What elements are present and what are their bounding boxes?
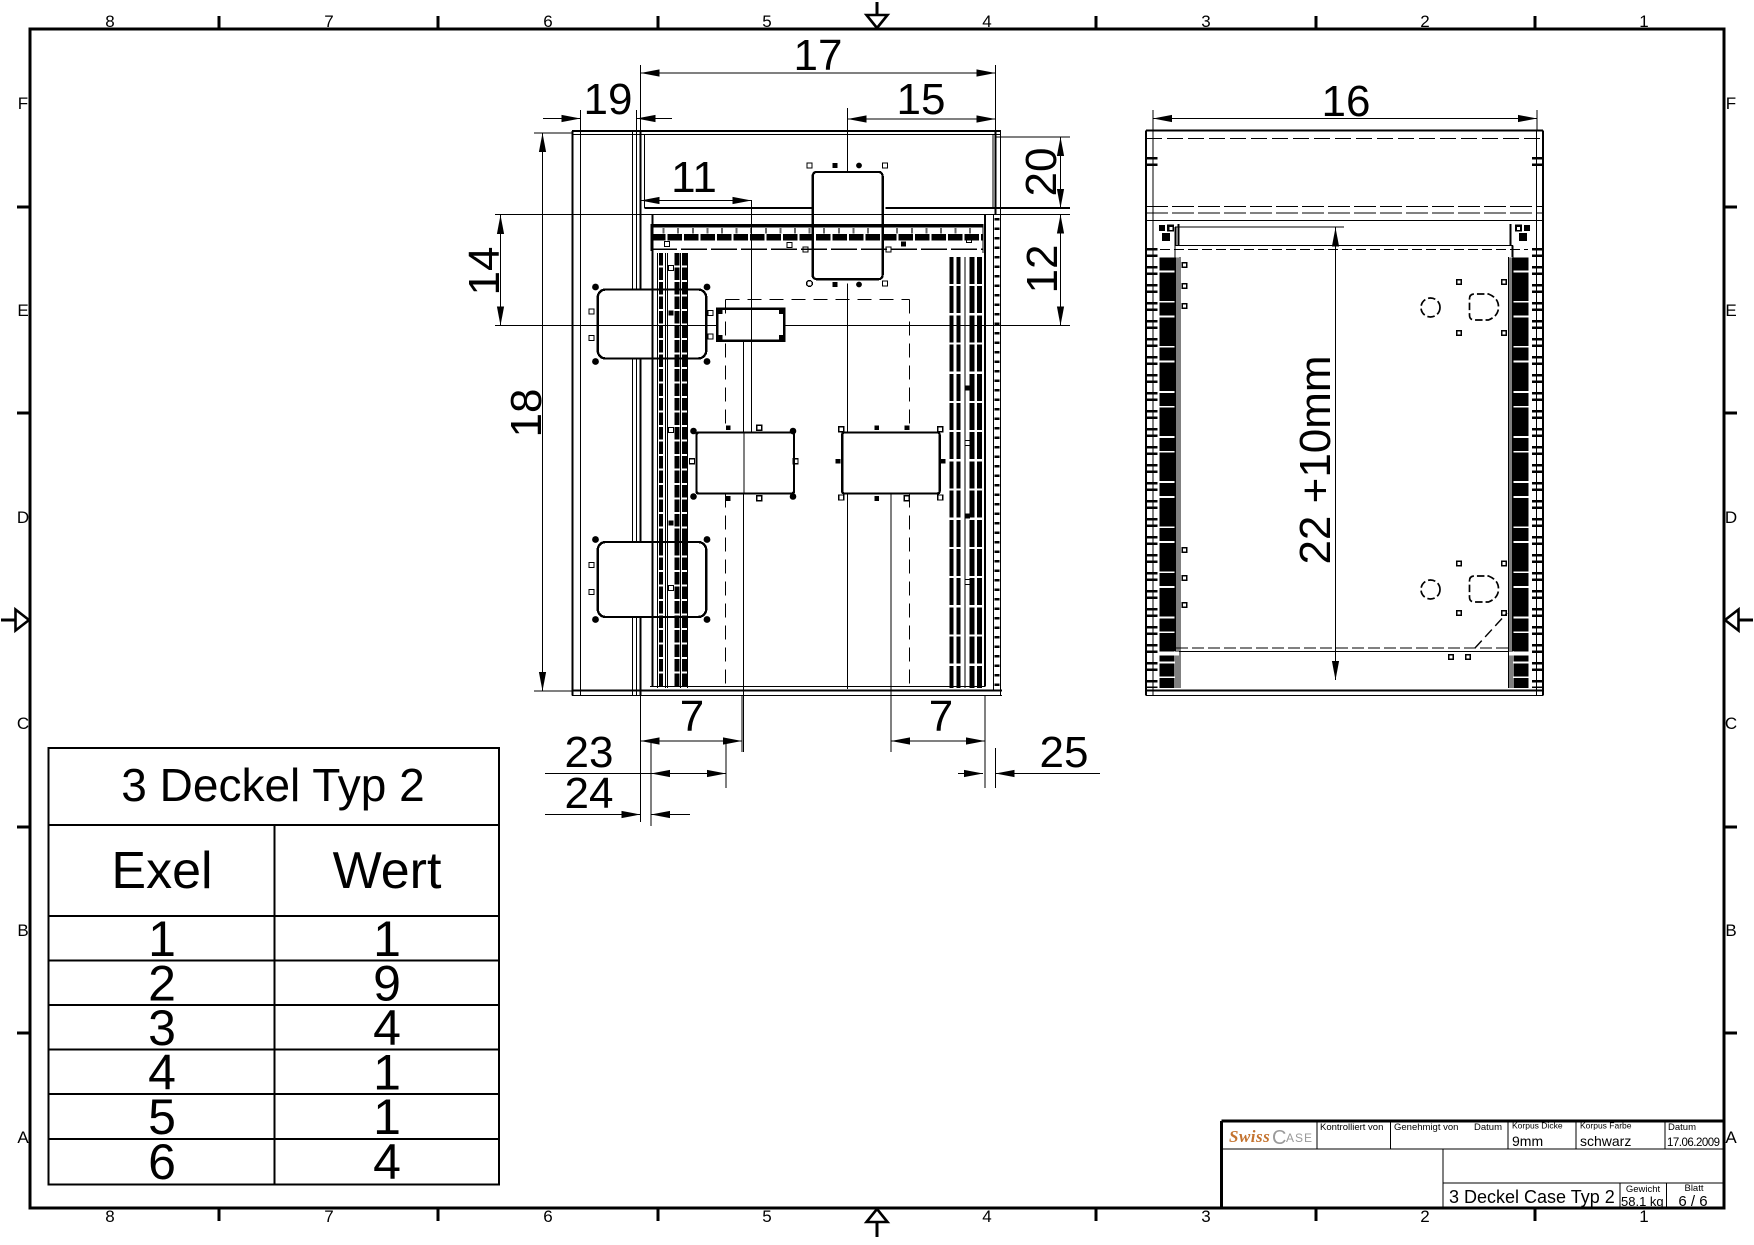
svg-text:22 +10mm: 22 +10mm xyxy=(1291,355,1340,564)
svg-text:6: 6 xyxy=(148,1134,176,1190)
svg-text:4: 4 xyxy=(373,1134,401,1190)
svg-text:58.1 kg: 58.1 kg xyxy=(1621,1194,1664,1209)
svg-text:Kontrolliert von: Kontrolliert von xyxy=(1320,1122,1383,1133)
svg-text:F: F xyxy=(18,94,28,113)
svg-text:Swiss: Swiss xyxy=(1229,1127,1270,1146)
svg-text:ASE: ASE xyxy=(1286,1131,1313,1145)
svg-text:C: C xyxy=(17,714,29,733)
svg-text:8: 8 xyxy=(105,1207,114,1226)
svg-text:7: 7 xyxy=(680,692,704,741)
svg-text:5: 5 xyxy=(762,1207,771,1226)
svg-text:F: F xyxy=(1726,94,1736,113)
svg-text:25: 25 xyxy=(1040,728,1089,777)
svg-text:4: 4 xyxy=(982,1207,991,1226)
svg-text:19: 19 xyxy=(584,75,633,124)
svg-text:E: E xyxy=(1725,301,1736,320)
svg-text:6: 6 xyxy=(543,12,552,31)
svg-text:Wert: Wert xyxy=(333,842,442,900)
svg-text:6: 6 xyxy=(543,1207,552,1226)
svg-text:C: C xyxy=(1725,714,1737,733)
svg-text:A: A xyxy=(17,1128,29,1147)
svg-text:5: 5 xyxy=(762,12,771,31)
svg-text:17.06.2009: 17.06.2009 xyxy=(1667,1137,1720,1149)
svg-text:Datum: Datum xyxy=(1668,1122,1696,1133)
svg-text:1: 1 xyxy=(1639,1207,1648,1226)
svg-text:18: 18 xyxy=(502,389,551,438)
svg-text:A: A xyxy=(1725,1128,1737,1147)
svg-text:4: 4 xyxy=(982,12,991,31)
svg-text:3: 3 xyxy=(1201,12,1210,31)
svg-text:C: C xyxy=(1272,1127,1286,1149)
svg-text:24: 24 xyxy=(565,769,614,818)
svg-text:Genehmigt von: Genehmigt von xyxy=(1394,1122,1458,1133)
svg-text:3 Deckel Case Typ 2: 3 Deckel Case Typ 2 xyxy=(1449,1187,1615,1207)
svg-text:11: 11 xyxy=(671,153,717,202)
svg-text:15: 15 xyxy=(897,75,946,124)
svg-text:8: 8 xyxy=(105,12,114,31)
svg-text:Datum: Datum xyxy=(1474,1122,1502,1133)
svg-text:7: 7 xyxy=(324,12,333,31)
svg-text:1: 1 xyxy=(1639,12,1648,31)
svg-text:Korpus Farbe: Korpus Farbe xyxy=(1580,1121,1632,1131)
svg-text:D: D xyxy=(17,508,29,527)
svg-text:6 / 6: 6 / 6 xyxy=(1678,1193,1707,1210)
svg-text:E: E xyxy=(17,301,28,320)
svg-text:D: D xyxy=(1725,508,1737,527)
svg-text:Korpus Dicke: Korpus Dicke xyxy=(1512,1121,1563,1131)
svg-text:3 Deckel Typ 2: 3 Deckel Typ 2 xyxy=(121,759,424,811)
svg-text:7: 7 xyxy=(929,692,953,741)
svg-text:B: B xyxy=(17,921,28,940)
svg-text:7: 7 xyxy=(324,1207,333,1226)
svg-text:2: 2 xyxy=(1420,1207,1429,1226)
svg-text:2: 2 xyxy=(1420,12,1429,31)
svg-text:14: 14 xyxy=(460,247,509,296)
svg-text:12: 12 xyxy=(1018,245,1067,294)
svg-text:3: 3 xyxy=(1201,1207,1210,1226)
svg-text:Exel: Exel xyxy=(111,842,212,900)
svg-text:schwarz: schwarz xyxy=(1580,1133,1631,1149)
svg-text:B: B xyxy=(1725,921,1736,940)
svg-text:9mm: 9mm xyxy=(1512,1133,1543,1149)
